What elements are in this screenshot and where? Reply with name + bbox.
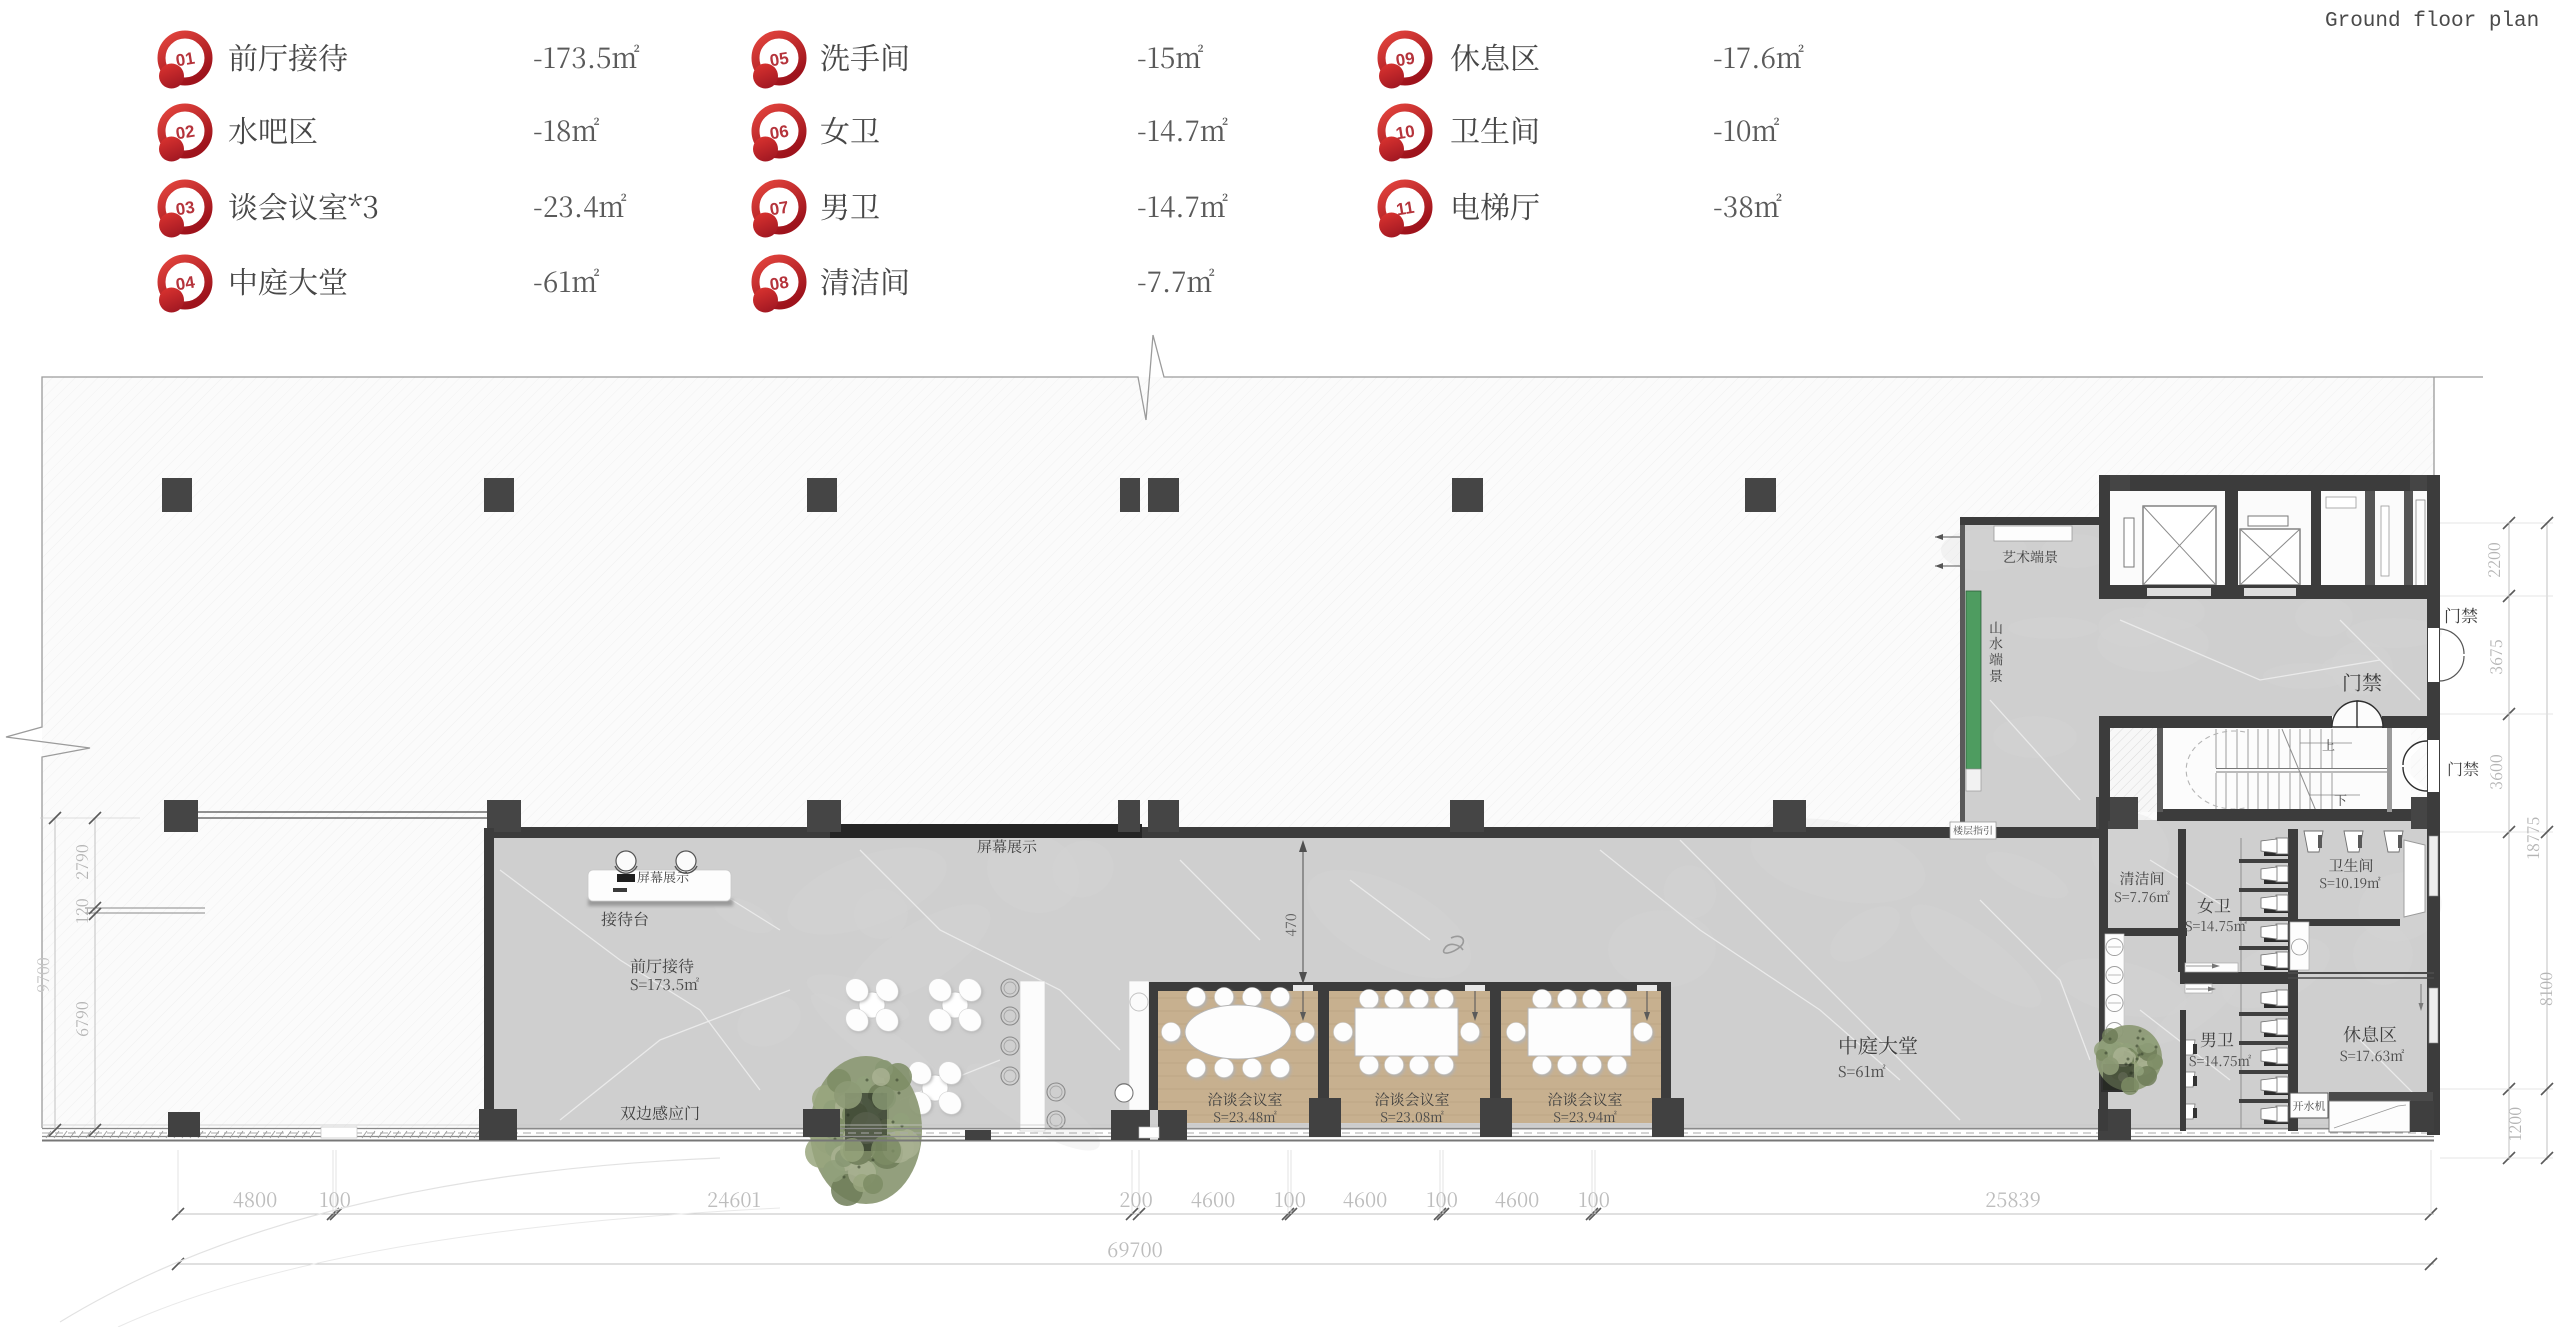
svg-text:-61㎡: -61㎡: [533, 261, 600, 301]
svg-text:接待台: 接待台: [601, 907, 649, 930]
svg-text:中庭大堂: 中庭大堂: [228, 258, 348, 302]
svg-text:18775: 18775: [2521, 816, 2544, 859]
svg-text:100: 100: [1426, 1184, 1458, 1213]
svg-text:24601: 24601: [707, 1184, 761, 1213]
svg-text:男卫: 男卫: [2200, 1026, 2234, 1051]
svg-text:10: 10: [1394, 122, 1416, 144]
svg-text:屏幕展示: 屏幕展示: [637, 867, 689, 886]
svg-text:S=173.5㎡: S=173.5㎡: [630, 974, 699, 995]
svg-text:-18㎡: -18㎡: [533, 110, 600, 150]
svg-text:100: 100: [1274, 1184, 1306, 1213]
svg-text:100: 100: [1578, 1184, 1610, 1213]
svg-text:2200: 2200: [2482, 542, 2505, 578]
svg-text:门禁: 门禁: [2444, 602, 2478, 627]
svg-text:门禁: 门禁: [2447, 757, 2479, 780]
svg-text:山水端景: 山水端景: [1986, 620, 2006, 684]
svg-text:4600: 4600: [1343, 1184, 1388, 1213]
svg-text:06: 06: [768, 122, 790, 144]
svg-text:屏幕展示: 屏幕展示: [977, 836, 1037, 857]
svg-text:08: 08: [768, 273, 790, 295]
svg-text:艺术端景: 艺术端景: [2002, 547, 2058, 567]
svg-text:04: 04: [174, 273, 196, 295]
svg-text:S=23.08㎡: S=23.08㎡: [1380, 1106, 1444, 1126]
svg-text:楼层指引: 楼层指引: [1953, 822, 1993, 837]
svg-text:01: 01: [174, 49, 196, 71]
svg-text:Ground floor plan: Ground floor plan: [2325, 10, 2539, 33]
svg-text:470: 470: [1281, 913, 1301, 936]
svg-text:3675: 3675: [2484, 639, 2507, 675]
svg-text:02: 02: [174, 122, 196, 144]
svg-text:S=23.94㎡: S=23.94㎡: [1553, 1106, 1617, 1126]
svg-text:-17.6㎡: -17.6㎡: [1713, 37, 1804, 77]
svg-text:05: 05: [768, 49, 790, 71]
svg-text:S=61㎡: S=61㎡: [1838, 1061, 1886, 1082]
svg-text:S=17.63㎡: S=17.63㎡: [2340, 1046, 2405, 1066]
svg-text:-10㎡: -10㎡: [1713, 110, 1779, 150]
svg-text:100: 100: [319, 1184, 351, 1213]
svg-text:休息区: 休息区: [1450, 34, 1540, 78]
svg-text:上: 上: [2322, 735, 2335, 754]
svg-text:3600: 3600: [2484, 754, 2507, 790]
svg-text:07: 07: [768, 198, 790, 220]
svg-text:-15㎡: -15㎡: [1137, 37, 1204, 77]
svg-text:-7.7㎡: -7.7㎡: [1137, 261, 1215, 301]
svg-text:-14.7㎡: -14.7㎡: [1137, 110, 1228, 150]
svg-text:S=14.75㎡: S=14.75㎡: [2189, 1050, 2252, 1070]
svg-text:4600: 4600: [1495, 1184, 1540, 1213]
svg-text:03: 03: [174, 198, 196, 220]
svg-text:25839: 25839: [1985, 1184, 2041, 1213]
svg-text:-23.4㎡: -23.4㎡: [533, 186, 627, 226]
svg-text:4800: 4800: [233, 1184, 278, 1213]
svg-text:69700: 69700: [1107, 1234, 1163, 1263]
svg-text:4600: 4600: [1191, 1184, 1236, 1213]
svg-text:200: 200: [1119, 1184, 1152, 1213]
svg-text:双边感应门: 双边感应门: [620, 1101, 700, 1124]
svg-text:09: 09: [1394, 49, 1416, 71]
svg-text:-173.5㎡: -173.5㎡: [533, 37, 640, 77]
svg-text:S=10.19㎡: S=10.19㎡: [2319, 872, 2381, 892]
svg-text:女卫: 女卫: [820, 107, 880, 151]
svg-text:11: 11: [1395, 198, 1416, 220]
svg-text:清洁间: 清洁间: [820, 258, 910, 302]
svg-text:S=7.76㎡: S=7.76㎡: [2114, 886, 2170, 906]
svg-text:电梯厅: 电梯厅: [1450, 183, 1540, 227]
svg-text:120: 120: [70, 898, 93, 923]
svg-text:6790: 6790: [70, 1001, 93, 1037]
svg-text:女卫: 女卫: [2197, 892, 2231, 917]
svg-text:8100: 8100: [2534, 972, 2557, 1006]
svg-text:-14.7㎡: -14.7㎡: [1137, 186, 1228, 226]
svg-text:-38㎡: -38㎡: [1713, 186, 1782, 226]
svg-text:男卫: 男卫: [820, 183, 880, 227]
svg-text:下: 下: [2334, 790, 2347, 809]
svg-text:S=23.48㎡: S=23.48㎡: [1213, 1106, 1277, 1126]
svg-text:谈会议室*3: 谈会议室*3: [228, 183, 379, 227]
svg-text:2790: 2790: [70, 844, 93, 880]
svg-text:门禁: 门禁: [2342, 667, 2382, 696]
svg-text:S=14.75㎡: S=14.75㎡: [2185, 915, 2248, 935]
svg-text:中庭大堂: 中庭大堂: [1838, 1030, 1918, 1059]
svg-text:水吧区: 水吧区: [228, 107, 318, 151]
svg-text:休息区: 休息区: [2343, 1021, 2397, 1047]
svg-text:1200: 1200: [2503, 1107, 2526, 1141]
svg-text:洗手间: 洗手间: [820, 34, 910, 78]
svg-text:开水机: 开水机: [2293, 1098, 2326, 1114]
svg-text:9700: 9700: [31, 957, 54, 993]
svg-text:前厅接待: 前厅接待: [228, 34, 348, 78]
svg-text:卫生间: 卫生间: [1450, 107, 1540, 151]
